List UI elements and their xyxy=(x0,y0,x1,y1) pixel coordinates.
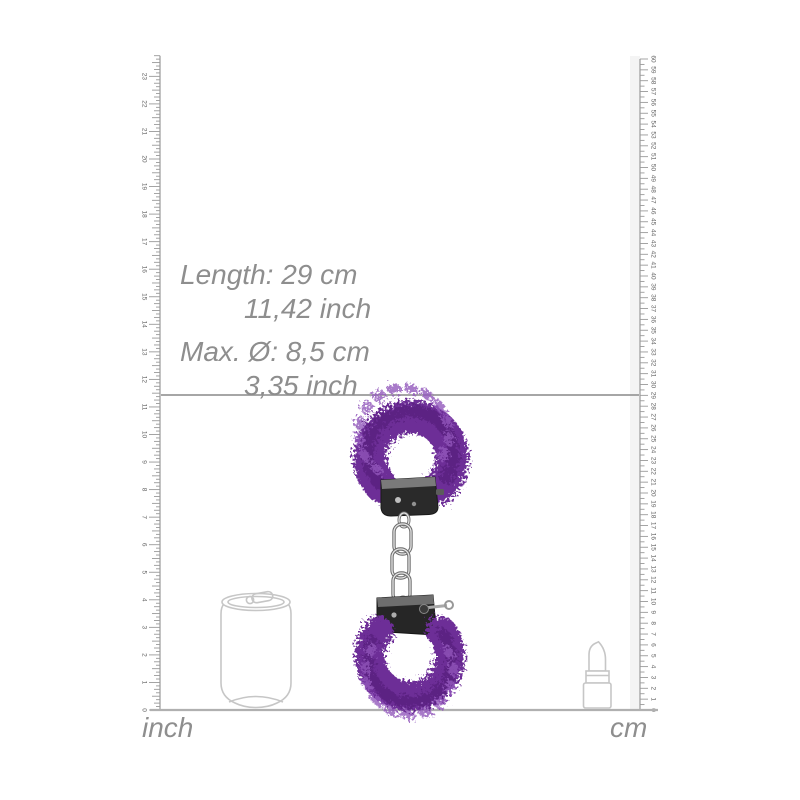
svg-text:5: 5 xyxy=(650,654,657,658)
svg-text:7: 7 xyxy=(650,632,657,636)
svg-text:19: 19 xyxy=(650,500,657,508)
svg-text:55: 55 xyxy=(650,110,657,118)
length-inch-text: 11,42 inch xyxy=(244,292,371,326)
svg-text:60: 60 xyxy=(650,55,657,63)
svg-text:44: 44 xyxy=(650,229,657,237)
top-cuff-fur xyxy=(359,388,454,487)
svg-text:15: 15 xyxy=(650,544,657,552)
svg-text:26: 26 xyxy=(650,424,657,432)
svg-text:58: 58 xyxy=(650,77,657,85)
soda-can-outline xyxy=(221,591,291,708)
svg-text:59: 59 xyxy=(650,66,657,74)
svg-text:27: 27 xyxy=(650,413,657,421)
cm-unit-label: cm xyxy=(610,712,647,744)
inch-unit-label: inch xyxy=(142,712,193,744)
svg-text:23: 23 xyxy=(141,73,148,81)
svg-text:1: 1 xyxy=(141,681,148,685)
svg-text:13: 13 xyxy=(141,348,148,356)
inch-ruler: 01234567891011121314151617181920212223 xyxy=(141,56,161,713)
svg-text:16: 16 xyxy=(650,533,657,541)
svg-text:57: 57 xyxy=(650,88,657,96)
svg-text:22: 22 xyxy=(141,100,148,108)
svg-text:8: 8 xyxy=(650,621,657,625)
svg-text:23: 23 xyxy=(650,457,657,465)
svg-text:29: 29 xyxy=(650,392,657,400)
svg-text:35: 35 xyxy=(650,327,657,335)
svg-text:49: 49 xyxy=(650,175,657,183)
svg-text:10: 10 xyxy=(650,598,657,606)
svg-text:47: 47 xyxy=(650,196,657,204)
svg-text:11: 11 xyxy=(141,404,148,411)
svg-text:45: 45 xyxy=(650,218,657,226)
svg-text:1: 1 xyxy=(650,697,657,701)
svg-text:30: 30 xyxy=(650,381,657,389)
svg-text:2: 2 xyxy=(141,653,148,657)
svg-text:13: 13 xyxy=(650,565,657,573)
svg-text:6: 6 xyxy=(141,543,148,547)
svg-text:15: 15 xyxy=(141,293,148,301)
length-cm-text: Length: 29 cm xyxy=(180,258,357,292)
svg-text:9: 9 xyxy=(650,611,657,615)
svg-text:43: 43 xyxy=(650,240,657,248)
svg-text:8: 8 xyxy=(141,488,148,492)
svg-text:17: 17 xyxy=(650,522,657,530)
svg-text:31: 31 xyxy=(650,370,657,378)
svg-text:12: 12 xyxy=(141,376,148,384)
svg-text:40: 40 xyxy=(650,272,657,280)
svg-text:25: 25 xyxy=(650,435,657,443)
svg-text:6: 6 xyxy=(650,643,657,647)
svg-text:36: 36 xyxy=(650,316,657,324)
svg-text:4: 4 xyxy=(141,598,148,602)
svg-text:4: 4 xyxy=(650,665,657,669)
svg-text:46: 46 xyxy=(650,207,657,215)
svg-text:7: 7 xyxy=(141,515,148,519)
svg-text:38: 38 xyxy=(650,294,657,302)
svg-text:32: 32 xyxy=(650,359,657,367)
svg-text:22: 22 xyxy=(650,468,657,476)
svg-text:16: 16 xyxy=(141,266,148,274)
bottom-cuff-fur xyxy=(365,631,453,715)
svg-text:52: 52 xyxy=(650,142,657,150)
chain xyxy=(392,513,411,609)
svg-text:54: 54 xyxy=(650,120,657,128)
product-dimension-diagram: 01234567891011121314151617181920212223 0… xyxy=(0,0,800,800)
top-cuff-lock xyxy=(381,477,444,516)
svg-text:20: 20 xyxy=(650,489,657,497)
svg-text:3: 3 xyxy=(650,676,657,680)
svg-text:18: 18 xyxy=(650,511,657,519)
svg-text:12: 12 xyxy=(650,576,657,584)
lipstick-outline xyxy=(584,642,612,708)
svg-text:51: 51 xyxy=(650,153,657,161)
svg-text:14: 14 xyxy=(141,321,148,329)
svg-text:42: 42 xyxy=(650,251,657,259)
svg-text:9: 9 xyxy=(141,460,148,464)
cm-ruler: 0123456789101112131415161718192021222324… xyxy=(630,55,657,712)
furry-handcuffs xyxy=(359,388,454,715)
svg-text:14: 14 xyxy=(650,554,657,562)
svg-text:18: 18 xyxy=(141,210,148,218)
svg-text:39: 39 xyxy=(650,283,657,291)
svg-text:3: 3 xyxy=(141,626,148,630)
svg-text:10: 10 xyxy=(141,431,148,439)
svg-text:37: 37 xyxy=(650,305,657,313)
svg-text:34: 34 xyxy=(650,337,657,345)
svg-text:24: 24 xyxy=(650,446,657,454)
svg-text:19: 19 xyxy=(141,183,148,191)
svg-text:53: 53 xyxy=(650,131,657,139)
svg-text:20: 20 xyxy=(141,155,148,163)
svg-text:48: 48 xyxy=(650,186,657,194)
diameter-inch-text: 3,35 inch xyxy=(244,369,358,403)
svg-text:33: 33 xyxy=(650,348,657,356)
svg-text:56: 56 xyxy=(650,99,657,107)
svg-text:2: 2 xyxy=(650,686,657,690)
svg-text:17: 17 xyxy=(141,238,148,246)
svg-text:41: 41 xyxy=(650,262,657,270)
svg-text:28: 28 xyxy=(650,403,657,411)
svg-text:50: 50 xyxy=(650,164,657,172)
svg-text:21: 21 xyxy=(650,479,657,487)
svg-text:5: 5 xyxy=(141,570,148,574)
diameter-cm-text: Max. Ø: 8,5 cm xyxy=(180,335,370,369)
diagram-canvas: 01234567891011121314151617181920212223 0… xyxy=(0,0,800,800)
svg-text:11: 11 xyxy=(650,587,657,594)
svg-text:21: 21 xyxy=(141,128,148,136)
